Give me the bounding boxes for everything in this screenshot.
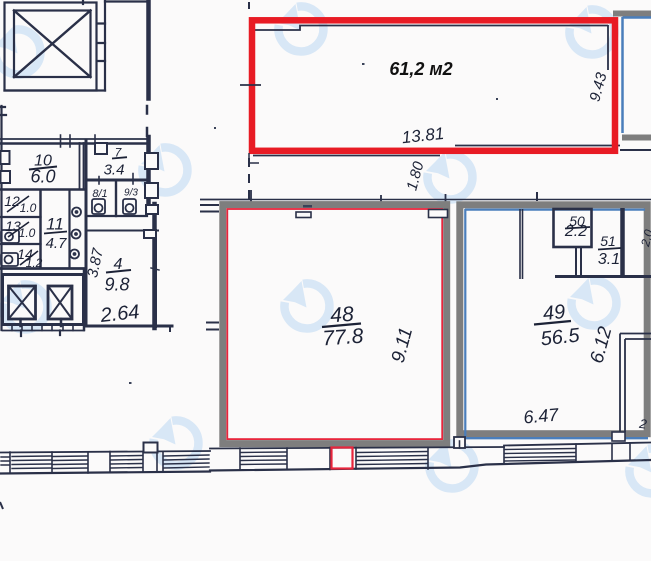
svg-text:9/3: 9/3 xyxy=(124,188,138,199)
svg-text:51: 51 xyxy=(600,233,616,249)
svg-text:1.2: 1.2 xyxy=(26,256,43,270)
svg-text:3.4: 3.4 xyxy=(104,162,125,179)
svg-text:9.8: 9.8 xyxy=(104,275,129,295)
svg-text:4.7: 4.7 xyxy=(46,235,68,252)
svg-text:8/1: 8/1 xyxy=(92,188,107,200)
svg-text:56.5: 56.5 xyxy=(540,324,582,350)
svg-text:77.8: 77.8 xyxy=(322,325,365,351)
svg-text:6.0: 6.0 xyxy=(30,167,55,187)
svg-text:2.64: 2.64 xyxy=(98,301,140,327)
svg-text:6.47: 6.47 xyxy=(523,404,561,427)
svg-text:2.2: 2.2 xyxy=(564,223,587,240)
svg-text:3.1: 3.1 xyxy=(598,251,620,268)
svg-text:12: 12 xyxy=(4,193,20,209)
svg-text:1.0: 1.0 xyxy=(20,201,37,215)
svg-text:61,2 м2: 61,2 м2 xyxy=(389,59,452,79)
svg-text:11: 11 xyxy=(46,215,64,234)
svg-text:1.0: 1.0 xyxy=(19,226,36,240)
